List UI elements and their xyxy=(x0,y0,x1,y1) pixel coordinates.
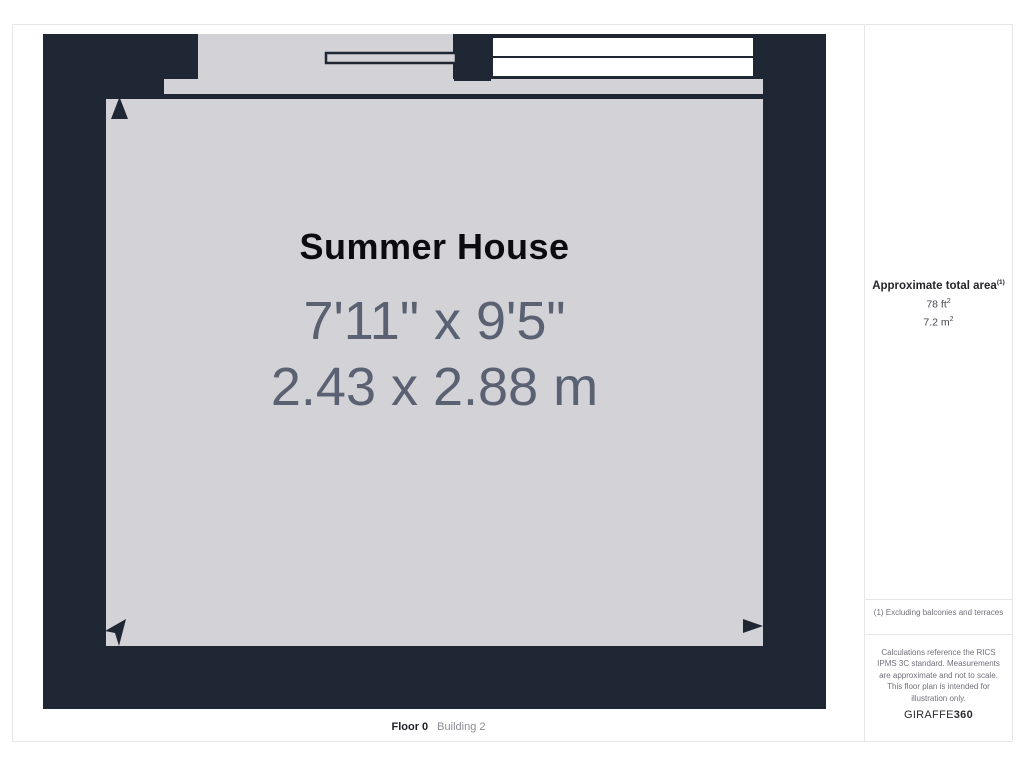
footnote-text: (1) Excluding balconies and terraces xyxy=(865,608,1012,617)
area-imperial-value: 78 ft xyxy=(926,298,946,310)
room-floor xyxy=(106,99,763,646)
area-title-footnote-ref: (1) xyxy=(997,279,1005,286)
sliding-door-leaf xyxy=(326,53,456,63)
area-imperial: 78 ft2 xyxy=(865,298,1012,311)
info-sidebar: Approximate total area(1) 78 ft2 7.2 m2 … xyxy=(864,25,1012,741)
window-pane-bottom xyxy=(493,58,753,76)
building-name: Building 2 xyxy=(437,721,485,733)
floor-name: Floor 0 xyxy=(392,721,429,733)
area-imperial-sup: 2 xyxy=(947,298,951,305)
brand-suffix: 360 xyxy=(954,709,973,721)
area-metric-sup: 2 xyxy=(950,316,954,323)
wall-pier xyxy=(454,34,491,81)
terrace-floor-lower xyxy=(164,79,763,94)
area-title-text: Approximate total area xyxy=(872,280,997,292)
sidebar-divider xyxy=(865,634,1012,635)
area-metric: 7.2 m2 xyxy=(865,316,1012,329)
total-area-block: Approximate total area(1) 78 ft2 7.2 m2 xyxy=(865,279,1012,329)
window-pane-top xyxy=(493,38,753,56)
floorplan-drawing xyxy=(43,34,826,709)
floorplan-card: Summer House 7'11" x 9'5" 2.43 x 2.88 m … xyxy=(12,24,1013,742)
sidebar-divider xyxy=(865,599,1012,600)
brand-prefix: GIRAFFE xyxy=(904,709,954,721)
floorplan-area: Summer House 7'11" x 9'5" 2.43 x 2.88 m … xyxy=(13,25,864,741)
area-metric-value: 7.2 m xyxy=(923,317,949,329)
area-title: Approximate total area(1) xyxy=(865,279,1012,292)
brand-logo: GIRAFFE360 xyxy=(865,709,1012,721)
floor-building-label: Floor 0Building 2 xyxy=(13,721,864,733)
disclaimer-text: Calculations reference the RICS IPMS 3C … xyxy=(865,647,1012,704)
